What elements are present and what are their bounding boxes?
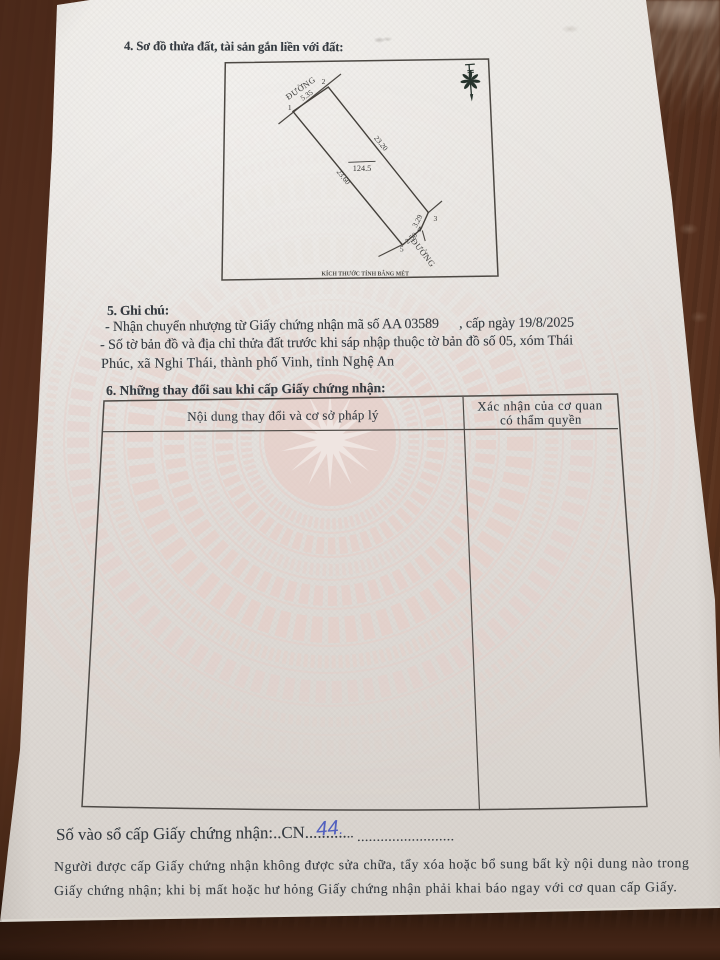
svg-text:124.5: 124.5 xyxy=(353,164,371,173)
svg-text:ĐƯỜNG: ĐƯỜNG xyxy=(409,236,438,269)
svg-text:2: 2 xyxy=(322,77,326,86)
svg-text:23.20: 23.20 xyxy=(372,134,390,153)
svg-text:KÍCH THƯỚC TÍNH BẰNG MÉT: KÍCH THƯỚC TÍNH BẰNG MÉT xyxy=(321,270,409,278)
svg-text:23.60: 23.60 xyxy=(335,167,353,186)
svg-text:1: 1 xyxy=(288,103,292,112)
svg-text:3: 3 xyxy=(434,214,438,223)
svg-text:4: 4 xyxy=(417,224,421,233)
svg-text:5: 5 xyxy=(400,244,404,253)
